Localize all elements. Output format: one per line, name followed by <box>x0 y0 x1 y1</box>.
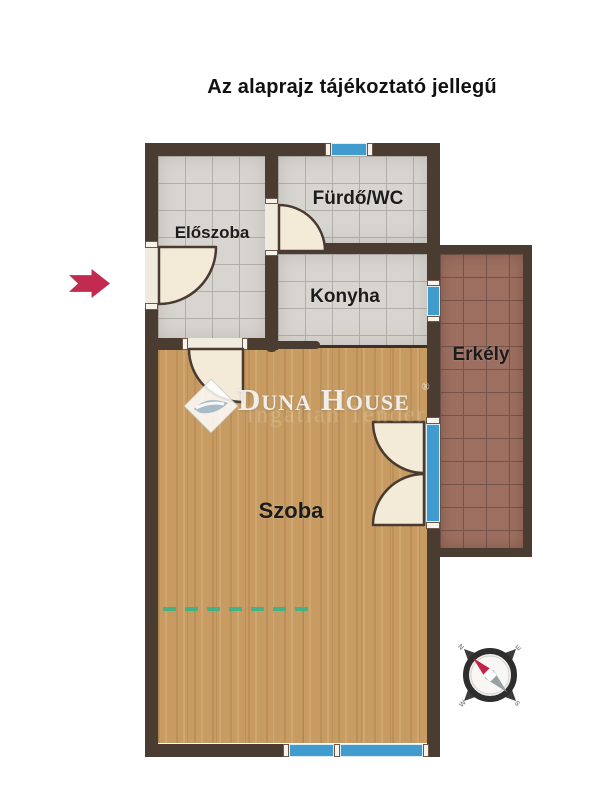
wall-balcony-right <box>523 245 532 557</box>
floorplan-page: Az alaprajz tájékoztató jellegű <box>0 0 600 810</box>
window-jamb <box>427 316 440 322</box>
compass-w: W <box>458 699 468 709</box>
compass-n: N <box>456 643 465 652</box>
window-konyha <box>427 286 440 316</box>
window-szoba-left <box>289 744 334 757</box>
window-furdo-top <box>331 143 367 156</box>
dunahouse-logo-icon <box>180 375 242 437</box>
compass-s: S <box>513 700 521 708</box>
room-label-furdo-wc: Fürdő/WC <box>292 188 424 210</box>
page-title: Az alaprajz tájékoztató jellegű <box>104 76 600 99</box>
room-label-eloszoba: Előszoba <box>156 223 268 243</box>
room-label-erkely: Erkély <box>430 344 532 366</box>
balcony-door-glazing <box>426 424 440 522</box>
konyha-wall-stub <box>278 341 320 349</box>
room-label-konyha: Konyha <box>284 286 406 308</box>
compass-rose-icon: N E S W <box>452 637 528 713</box>
compass-e: E <box>515 644 523 652</box>
entrance-opening <box>145 248 158 303</box>
entrance-arrow-icon <box>69 269 110 298</box>
balcony-door-leaf-bottom <box>372 473 425 526</box>
door-jamb <box>265 250 278 256</box>
wall-balcony-top <box>436 245 532 254</box>
watermark: Ingatlan Tender Duna House ® <box>180 374 445 438</box>
door-jamb <box>426 522 440 529</box>
furdo-door-swing <box>278 204 326 252</box>
door-jamb <box>145 303 158 310</box>
window-jamb <box>367 143 373 156</box>
registered-mark: ® <box>422 382 430 393</box>
dashed-section-line <box>163 607 308 611</box>
floor-erkely-balcony <box>440 254 523 548</box>
watermark-brand: Duna House <box>238 384 443 415</box>
wall-top <box>145 143 440 156</box>
wall-balcony-bottom <box>436 548 532 557</box>
window-szoba-right <box>340 744 423 757</box>
room-label-szoba: Szoba <box>221 498 361 524</box>
entrance-door-swing <box>158 246 218 306</box>
window-jamb <box>423 744 429 757</box>
